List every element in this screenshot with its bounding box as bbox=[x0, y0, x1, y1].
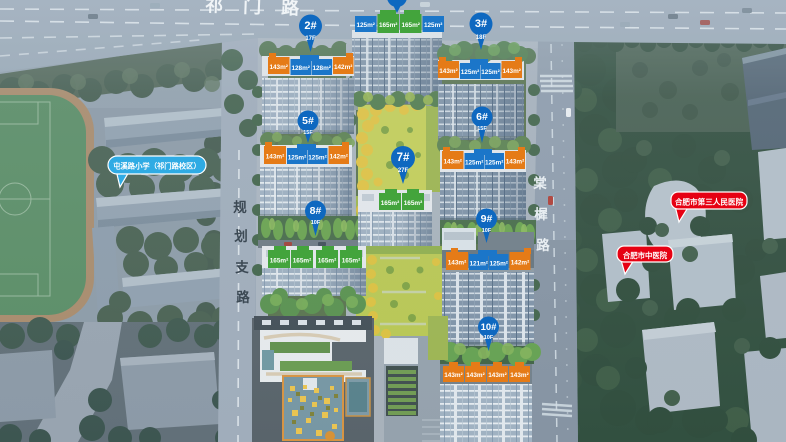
svg-text:樨: 樨 bbox=[534, 206, 548, 222]
svg-text:合肥市第三人民医院: 合肥市第三人民医院 bbox=[675, 197, 744, 207]
svg-text:143m²: 143m² bbox=[510, 372, 528, 379]
svg-text:165m²: 165m² bbox=[318, 258, 336, 265]
svg-text:165m²: 165m² bbox=[270, 258, 288, 265]
svg-text:27F: 27F bbox=[398, 168, 409, 174]
svg-text:143m²: 143m² bbox=[443, 159, 461, 166]
svg-text:165m²: 165m² bbox=[293, 258, 311, 265]
svg-text:9#: 9# bbox=[481, 213, 493, 225]
svg-text:10#: 10# bbox=[481, 322, 498, 333]
svg-text:10F: 10F bbox=[311, 220, 321, 226]
svg-text:143m²: 143m² bbox=[506, 159, 524, 166]
svg-text:划: 划 bbox=[234, 228, 248, 244]
svg-text:路: 路 bbox=[236, 289, 250, 305]
svg-text:屯溪路小学（祁门路校区）: 屯溪路小学（祁门路校区） bbox=[113, 162, 201, 171]
svg-text:165m²: 165m² bbox=[379, 22, 397, 29]
svg-text:10F: 10F bbox=[484, 335, 494, 341]
svg-text:125m²: 125m² bbox=[489, 261, 507, 268]
svg-text:10F: 10F bbox=[482, 228, 492, 234]
svg-text:143m²: 143m² bbox=[439, 68, 457, 75]
svg-text:6#: 6# bbox=[476, 111, 488, 123]
svg-text:125m²: 125m² bbox=[288, 155, 306, 162]
svg-text:3#: 3# bbox=[475, 18, 487, 30]
svg-text:125m²: 125m² bbox=[356, 22, 374, 29]
svg-text:15F: 15F bbox=[303, 130, 313, 136]
svg-text:165m²: 165m² bbox=[342, 258, 360, 265]
svg-text:合肥市中医院: 合肥市中医院 bbox=[622, 251, 668, 260]
svg-text:143m²: 143m² bbox=[444, 372, 462, 379]
svg-text:165m²: 165m² bbox=[381, 200, 399, 207]
svg-text:5#: 5# bbox=[302, 115, 314, 127]
svg-text:125m²: 125m² bbox=[308, 155, 326, 162]
svg-text:棠: 棠 bbox=[532, 175, 547, 191]
svg-text:143m²: 143m² bbox=[448, 260, 466, 267]
svg-text:125m²: 125m² bbox=[485, 160, 503, 167]
svg-text:15F: 15F bbox=[477, 126, 487, 132]
svg-text:125m²: 125m² bbox=[424, 22, 442, 29]
svg-text:125m²: 125m² bbox=[461, 69, 479, 76]
svg-text:121m²: 121m² bbox=[469, 261, 487, 268]
svg-text:规: 规 bbox=[233, 200, 247, 215]
svg-text:142m²: 142m² bbox=[334, 64, 352, 71]
svg-text:128m²: 128m² bbox=[312, 65, 330, 72]
svg-text:142m²: 142m² bbox=[511, 260, 529, 267]
svg-text:8#: 8# bbox=[310, 205, 322, 217]
svg-text:2#: 2# bbox=[304, 20, 316, 32]
svg-text:支: 支 bbox=[234, 259, 249, 275]
svg-text:125m²: 125m² bbox=[481, 69, 499, 76]
svg-text:143m²: 143m² bbox=[466, 372, 484, 379]
svg-text:125m²: 125m² bbox=[465, 160, 483, 167]
svg-text:143m²: 143m² bbox=[502, 68, 520, 75]
svg-text:路: 路 bbox=[536, 237, 550, 253]
svg-text:165m²: 165m² bbox=[404, 200, 422, 207]
svg-text:165m²: 165m² bbox=[401, 22, 419, 29]
svg-text:18F: 18F bbox=[476, 35, 487, 41]
svg-text:7#: 7# bbox=[397, 152, 410, 164]
svg-text:143m²: 143m² bbox=[266, 154, 284, 161]
svg-text:143m²: 143m² bbox=[488, 372, 506, 379]
svg-text:128m²: 128m² bbox=[291, 65, 309, 72]
svg-text:142m²: 142m² bbox=[329, 154, 347, 161]
svg-text:17F: 17F bbox=[305, 36, 316, 42]
svg-text:143m²: 143m² bbox=[269, 64, 287, 71]
